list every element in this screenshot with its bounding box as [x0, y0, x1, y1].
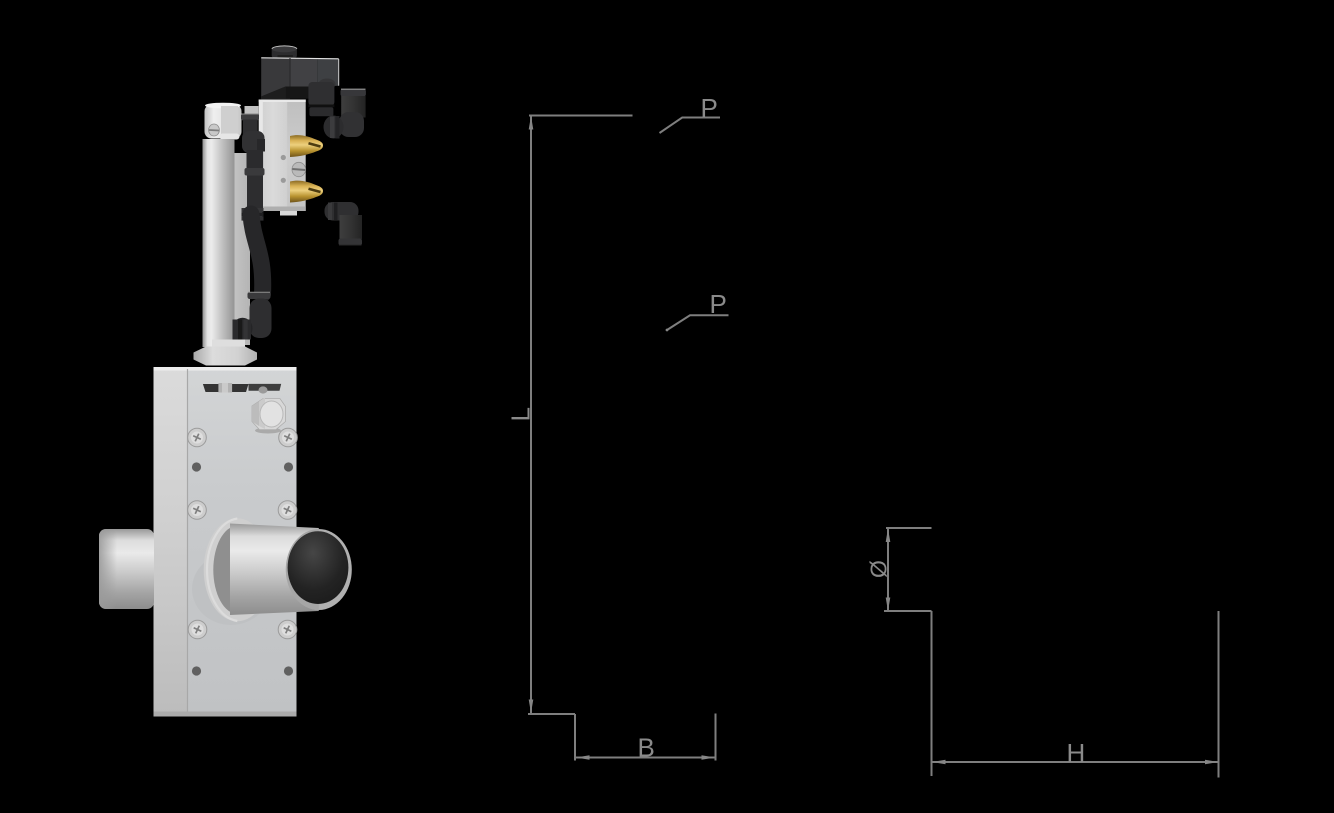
- svg-text:B: B: [638, 733, 655, 763]
- svg-text:P: P: [710, 289, 727, 319]
- svg-text:H: H: [1067, 738, 1086, 768]
- svg-text:L: L: [506, 407, 536, 421]
- svg-text:P: P: [701, 93, 718, 123]
- svg-text:Ø: Ø: [866, 560, 892, 578]
